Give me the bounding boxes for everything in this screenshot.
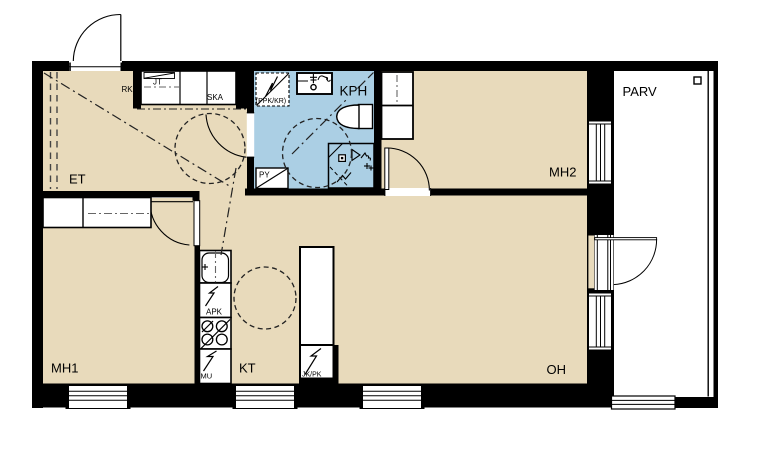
svg-text:(PPK/KR): (PPK/KR) [256, 98, 286, 105]
svg-text:KT: KT [239, 361, 256, 376]
svg-text:JK/PK: JK/PK [302, 372, 322, 379]
svg-text:PY: PY [259, 171, 270, 180]
svg-text:MH1: MH1 [51, 361, 78, 376]
svg-text:RK: RK [122, 85, 134, 94]
svg-text:APK: APK [206, 308, 223, 317]
svg-text:PARV: PARV [623, 84, 658, 99]
svg-text:SKA: SKA [207, 93, 224, 102]
svg-text:MU: MU [201, 372, 213, 381]
svg-text:ET: ET [69, 172, 86, 187]
svg-text:OH: OH [547, 362, 567, 377]
svg-text:KPH: KPH [340, 84, 368, 99]
svg-text:JT: JT [153, 78, 162, 87]
svg-text:MH2: MH2 [549, 165, 576, 180]
